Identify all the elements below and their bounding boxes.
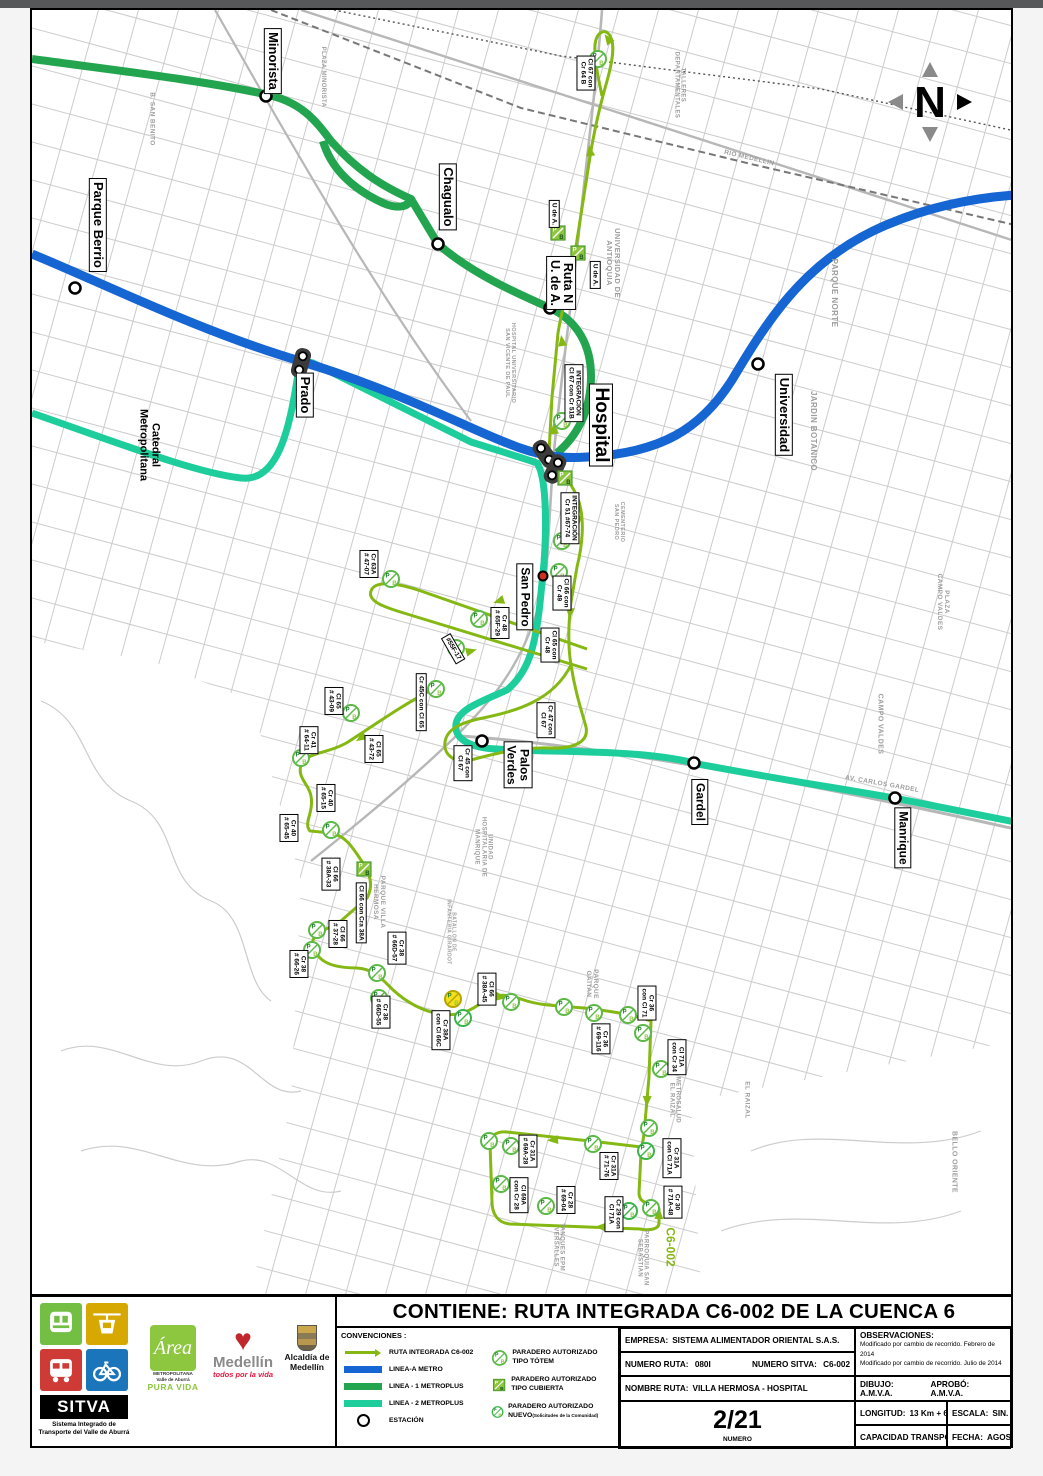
- legend-stop-label: PARADERO AUTORIZADO NUEVO(Solicitudes de…: [508, 1403, 614, 1421]
- escala-cell: ESCALA: SIN.: [947, 1401, 1011, 1425]
- stop-label: Cr 47 con Cl 67: [537, 702, 556, 738]
- legend-stop-label: PARADERO AUTORIZADO TIPO CUBIERTA: [511, 1376, 614, 1394]
- legend-stop-item: PBPARADERO AUTORIZADO TIPO TÓTEM: [491, 1344, 614, 1371]
- fecha-value: AGOSTO DE 2013.: [987, 1433, 1011, 1442]
- station-label: Ruta N U. de A.: [546, 256, 576, 310]
- capacidad-cell: CAPACIDAD TRANSPORTADORA: ____ - BUS: [855, 1425, 947, 1449]
- train-icon: [46, 1309, 76, 1339]
- map-canvas: PBPBPBPBPBPBPBPBPBPBPBPBPBPBPBPBPBPBPBPB…: [32, 10, 1011, 1294]
- nombre-value: VILLA HERMOSA - HOSPITAL: [693, 1384, 808, 1393]
- stop-label: Cr 41 # 64-11: [300, 726, 319, 754]
- legend-line-label: ESTACIÓN: [389, 1417, 424, 1424]
- area-label: CEMENTERIO SAN PEDRO: [612, 502, 624, 543]
- legend-line-item: RUTA INTEGRADA C6-002: [341, 1344, 491, 1361]
- paradero-legend-icon: PB: [491, 1347, 508, 1369]
- stop-label: Cr 38A con Cl 66C: [432, 1010, 451, 1050]
- longitud-value: 13 Km + 680 m aprox.: [909, 1409, 947, 1418]
- svg-text:P: P: [495, 1352, 499, 1358]
- stop-label: Cl 65 # 43-72: [365, 735, 384, 763]
- empresa-label: EMPRESA:: [625, 1336, 668, 1345]
- sitva-subtitle: Sistema Integrado de Transporte del Vall…: [32, 1421, 136, 1437]
- north-tri-left: [888, 94, 903, 110]
- route-swatch-icon: [341, 1349, 385, 1357]
- legend-stop-label: PARADERO AUTORIZADO TIPO TÓTEM: [512, 1349, 614, 1367]
- legend-line-label: LINEA-A METRO: [389, 1366, 443, 1373]
- stop-label: Cr 38 # 66-26: [290, 950, 309, 978]
- metro-swatch-icon: [341, 1366, 385, 1373]
- north-tri-right: [957, 94, 972, 110]
- aprobo-label: APROBÓ:: [931, 1380, 970, 1389]
- area-label: PARQUE GAITAN: [584, 969, 598, 999]
- north-arrow: N: [888, 62, 972, 146]
- stop-label: Cr 40 # 65-45: [280, 814, 299, 842]
- dibujo-cell: DIBUJO: A.M.V.A. APROBÓ: A.M.V.A.: [855, 1376, 1011, 1401]
- stop-label: Cr 31A # 69A-28: [519, 1135, 538, 1168]
- cable-tile: [86, 1303, 128, 1345]
- station-swatch-icon: [341, 1414, 385, 1427]
- station-label: Catedral Metropolitana: [136, 406, 161, 484]
- numero-cell: NUMERO RUTA: 080I NUMERO SITVA: C6-002: [620, 1352, 855, 1376]
- paradero-legend-icon: PB: [491, 1374, 507, 1396]
- stop-label: Cl 65 con Cr 48: [541, 628, 560, 663]
- area-label: AV. CARLOS GARDEL: [844, 775, 919, 795]
- area-label: PLAZA MINORISTA: [320, 47, 326, 108]
- medellin-logo: ♥ Medellín todos por la vida: [204, 1327, 282, 1379]
- stop-label: Cl 66 con Cr 49: [553, 576, 572, 611]
- alcaldia-label: Alcaldía de Medellín: [280, 1353, 334, 1373]
- legend-stop-item: PBPARADERO AUTORIZADO NUEVO(Solicitudes …: [491, 1398, 614, 1425]
- transport-mode-tiles: [40, 1303, 128, 1391]
- svg-text:B: B: [501, 1359, 505, 1365]
- area-label: TALLERES DEPARTAMENTALES: [673, 52, 686, 119]
- medellin-label: Medellín: [204, 1355, 282, 1370]
- area-label: EL RAIZAL: [743, 1081, 750, 1118]
- stop-label: INTEGRACIÓN Cr 51 #67-74: [561, 492, 580, 544]
- legend-lines-column: RUTA INTEGRADA C6-002LINEA-A METROLINEA …: [341, 1344, 491, 1429]
- area-label: PLAZA CAMPO VALDES: [935, 574, 949, 631]
- legend-stop-item: PBPARADERO AUTORIZADO TIPO CUBIERTA: [491, 1371, 614, 1398]
- route-map-sheet: PBPBPBPBPBPBPBPBPBPBPBPBPBPBPBPBPBPBPBPB…: [30, 8, 1013, 1448]
- legend-line-label: RUTA INTEGRADA C6-002: [389, 1349, 473, 1356]
- capacidad-label: CAPACIDAD TRANSPORTADORA:: [860, 1433, 947, 1442]
- alcaldia-logo: Alcaldía de Medellín: [280, 1325, 334, 1373]
- info-table-block: CONTIENE: RUTA INTEGRADA C6-002 DE LA CU…: [335, 1297, 1011, 1446]
- stop-label: Cr 40 # 65-15: [317, 784, 336, 812]
- svg-text:B: B: [500, 1386, 504, 1392]
- stop-label: Cr 28 # 69-04: [557, 1186, 576, 1214]
- stop-label: U de A.: [589, 261, 600, 289]
- numero-ruta-label: NUMERO RUTA:: [625, 1360, 689, 1369]
- area-label: BATALLON DE INFANTERIA GIRARDOT: [445, 899, 456, 964]
- page-number-cell: 2/21 NUMERO: [620, 1401, 855, 1449]
- paradero-icon-s: PB: [493, 1379, 504, 1392]
- legend-line-item: ESTACIÓN: [341, 1412, 491, 1429]
- pura-vida-label: PURA VIDA: [144, 1382, 202, 1392]
- area-label: BELLO ORIENTE: [950, 1131, 957, 1193]
- north-tri-up: [922, 62, 938, 77]
- nombre-label: NOMBRE RUTA:: [625, 1384, 689, 1393]
- stop-label: Cl 66 # 38A-33: [322, 858, 341, 891]
- observaciones-value: Modificado por cambio de recorrido. Febr…: [860, 1340, 1006, 1369]
- paradero-icon-c: PB: [493, 1351, 507, 1365]
- north-tri-down: [922, 127, 938, 142]
- heart-icon: ♥: [204, 1327, 282, 1355]
- area-label: HOSPITAL UNIVERSITARIO SAN VICENTE DE PA…: [503, 323, 515, 403]
- legend-line-item: LINEA-A METRO: [341, 1361, 491, 1378]
- logos-panel: SITVA Sistema Integrado de Transporte de…: [32, 1297, 335, 1446]
- area-label: CAMPO VALDES: [876, 694, 883, 755]
- paradero-legend-icon: PB: [491, 1401, 504, 1423]
- dibujo-value: A.M.V.A.: [860, 1389, 892, 1398]
- route-number-badge: C6-002: [664, 1227, 677, 1266]
- station-label: Hospital: [589, 384, 613, 467]
- escala-label: ESCALA:: [952, 1409, 988, 1418]
- station-label: Prado: [296, 373, 314, 418]
- longitud-label: LONGITUD:: [860, 1409, 905, 1418]
- scan-top-strip: [0, 0, 1043, 8]
- stop-label: Cr 45 con Cl 67: [454, 745, 473, 781]
- area-label: TANQUES EPM VERSALLES: [552, 1223, 565, 1271]
- title-block: SITVA Sistema Integrado de Transporte de…: [32, 1294, 1011, 1446]
- legend-line-label: LINEA - 2 METROPLUS: [389, 1400, 464, 1407]
- empresa-value: SISTEMA ALIMENTADOR ORIENTAL S.A.S.: [672, 1336, 839, 1345]
- map-labels-layer: MinoristaChagualoParque BerrioPradoRuta …: [32, 10, 1011, 1294]
- observaciones-label: OBSERVACIONES:: [860, 1331, 934, 1340]
- area-label: METROSALUD EL RAIZAL: [668, 1077, 681, 1123]
- stop-label: Cl 67 con Cr 64 B: [577, 56, 596, 91]
- stop-label: Cr 48 # 65F-29: [491, 607, 510, 639]
- bike-tile: [86, 1349, 128, 1391]
- area-label: JARDIN BOTANICO: [809, 391, 817, 471]
- area-metropolitana-logo: Área METROPOLITANA Valle de Aburrá PURA …: [144, 1325, 202, 1392]
- north-letter: N: [914, 78, 946, 128]
- bus-tile: [40, 1349, 82, 1391]
- cable-icon: [92, 1309, 122, 1339]
- stop-label: Cr 45C con Cl 65: [415, 673, 426, 731]
- area-logo-icon: Área: [150, 1325, 196, 1371]
- dibujo-label: DIBUJO:: [860, 1380, 894, 1389]
- stop-label: Cl 65 # 43-09: [325, 687, 344, 715]
- escala-value: SIN.: [992, 1409, 1008, 1418]
- stop-label: Cr 38 # 66D-55: [372, 996, 391, 1029]
- area-label: UNIDAD HOSPITALARIA DE MANRIQUE: [474, 817, 493, 877]
- station-label: Chagualo: [439, 163, 457, 230]
- station-label: Minorista: [264, 28, 282, 94]
- area-label: PARQUE VILLA HERMOSA: [371, 876, 385, 929]
- stop-label: Cr 36 con Cl 71: [638, 986, 657, 1021]
- numero-sitva-value: C6-002: [823, 1360, 850, 1369]
- svg-text:B: B: [498, 1412, 501, 1417]
- stop-label: INTEGRACIÓN Cl 67 con Cr 51B: [565, 364, 584, 422]
- nombre-cell: NOMBRE RUTA: VILLA HERMOSA - HOSPITAL: [620, 1376, 855, 1401]
- route-info-table: EMPRESA: SISTEMA ALIMENTADOR ORIENTAL S.…: [620, 1328, 1011, 1449]
- stop-label: Cl 66 # 38A-45: [478, 973, 497, 1006]
- bike-icon: [92, 1355, 122, 1385]
- stop-label: Cr 63A # 47-07: [360, 550, 379, 578]
- station-label: Parque Berrio: [89, 178, 107, 272]
- stop-label: Cl 66 # 37-28: [329, 920, 348, 948]
- stop-label: Cl 69A con Cr 28: [510, 1177, 529, 1213]
- sitva-logo: SITVA: [40, 1395, 128, 1419]
- longitud-cell: LONGITUD: 13 Km + 680 m aprox.: [855, 1401, 947, 1425]
- station-label: San Pedro: [517, 563, 534, 630]
- numero-sitva-label: NUMERO SITVA:: [752, 1360, 817, 1369]
- stop-label: #55F-17: [440, 633, 465, 665]
- sheet-title: CONTIENE: RUTA INTEGRADA C6-002 DE LA CU…: [337, 1297, 1011, 1328]
- station-label: Universidad: [775, 374, 793, 456]
- area-label: UNIVERSIDAD DE ANTIOQUIA: [605, 228, 621, 298]
- legend-box: CONVENCIONES : RUTA INTEGRADA C6-002LINE…: [337, 1328, 620, 1449]
- numero-ruta-value: 080I: [695, 1360, 711, 1369]
- stop-label: Cr 30 # 71A-48: [664, 1186, 683, 1219]
- area-label: PARQUE NORTE: [830, 259, 838, 328]
- stop-label: Cr 31A # 71-76: [600, 1152, 619, 1180]
- area-logo-subtitle: METROPOLITANA Valle de Aburrá: [144, 1371, 202, 1382]
- aprobo-value: A.M.V.A.: [931, 1389, 963, 1398]
- empresa-cell: EMPRESA: SISTEMA ALIMENTADOR ORIENTAL S.…: [620, 1328, 855, 1352]
- fecha-cell: FECHA: AGOSTO DE 2013.: [947, 1425, 1011, 1449]
- paradero-icon-n: PB: [492, 1406, 503, 1417]
- stop-label: Cr 38 # 66D-57: [388, 932, 407, 965]
- station-label: Manrique: [895, 807, 912, 868]
- legend-heading: CONVENCIONES :: [341, 1331, 614, 1340]
- mp1-swatch-icon: [341, 1383, 385, 1390]
- stop-label: Cl 66 con Cra 38A: [355, 882, 366, 943]
- page-number: 2/21: [713, 1408, 762, 1433]
- medellin-slogan: todos por la vida: [204, 1370, 282, 1379]
- stop-label: Cl 71A con Cr 34: [668, 1039, 687, 1075]
- mp2-swatch-icon: [341, 1400, 385, 1407]
- alcaldia-crest-icon: [297, 1325, 317, 1351]
- area-label: PARROQUIA SAN SEBASTIAN: [636, 1230, 649, 1286]
- observaciones-cell: OBSERVACIONES: Modificado por cambio de …: [855, 1328, 1011, 1376]
- legend-line-item: LINEA - 2 METROPLUS: [341, 1395, 491, 1412]
- stop-label: Cr 36 # 69-116: [592, 1023, 611, 1054]
- stop-label: U de A.: [548, 200, 559, 228]
- stop-label: Cr 31A con Cl 71A: [663, 1138, 682, 1178]
- fecha-label: FECHA:: [952, 1433, 983, 1442]
- station-label: Palos Verdes: [503, 741, 532, 788]
- area-label: RIO MEDELLIN: [723, 150, 775, 168]
- legend-line-item: LINEA - 1 METROPLUS: [341, 1378, 491, 1395]
- stop-label: Cr 29 con Cl 71A: [605, 1196, 624, 1232]
- bus-icon: [46, 1355, 76, 1385]
- legend-line-label: LINEA - 1 METROPLUS: [389, 1383, 464, 1390]
- metro-tile: [40, 1303, 82, 1345]
- svg-text:P: P: [494, 1407, 497, 1412]
- page-number-label: NUMERO: [723, 1436, 752, 1443]
- station-label: Gardel: [692, 779, 709, 825]
- area-label: B. SAN BENITO: [148, 92, 155, 145]
- legend-stops-column: PBPARADERO AUTORIZADO TIPO TÓTEMPBPARADE…: [491, 1344, 614, 1429]
